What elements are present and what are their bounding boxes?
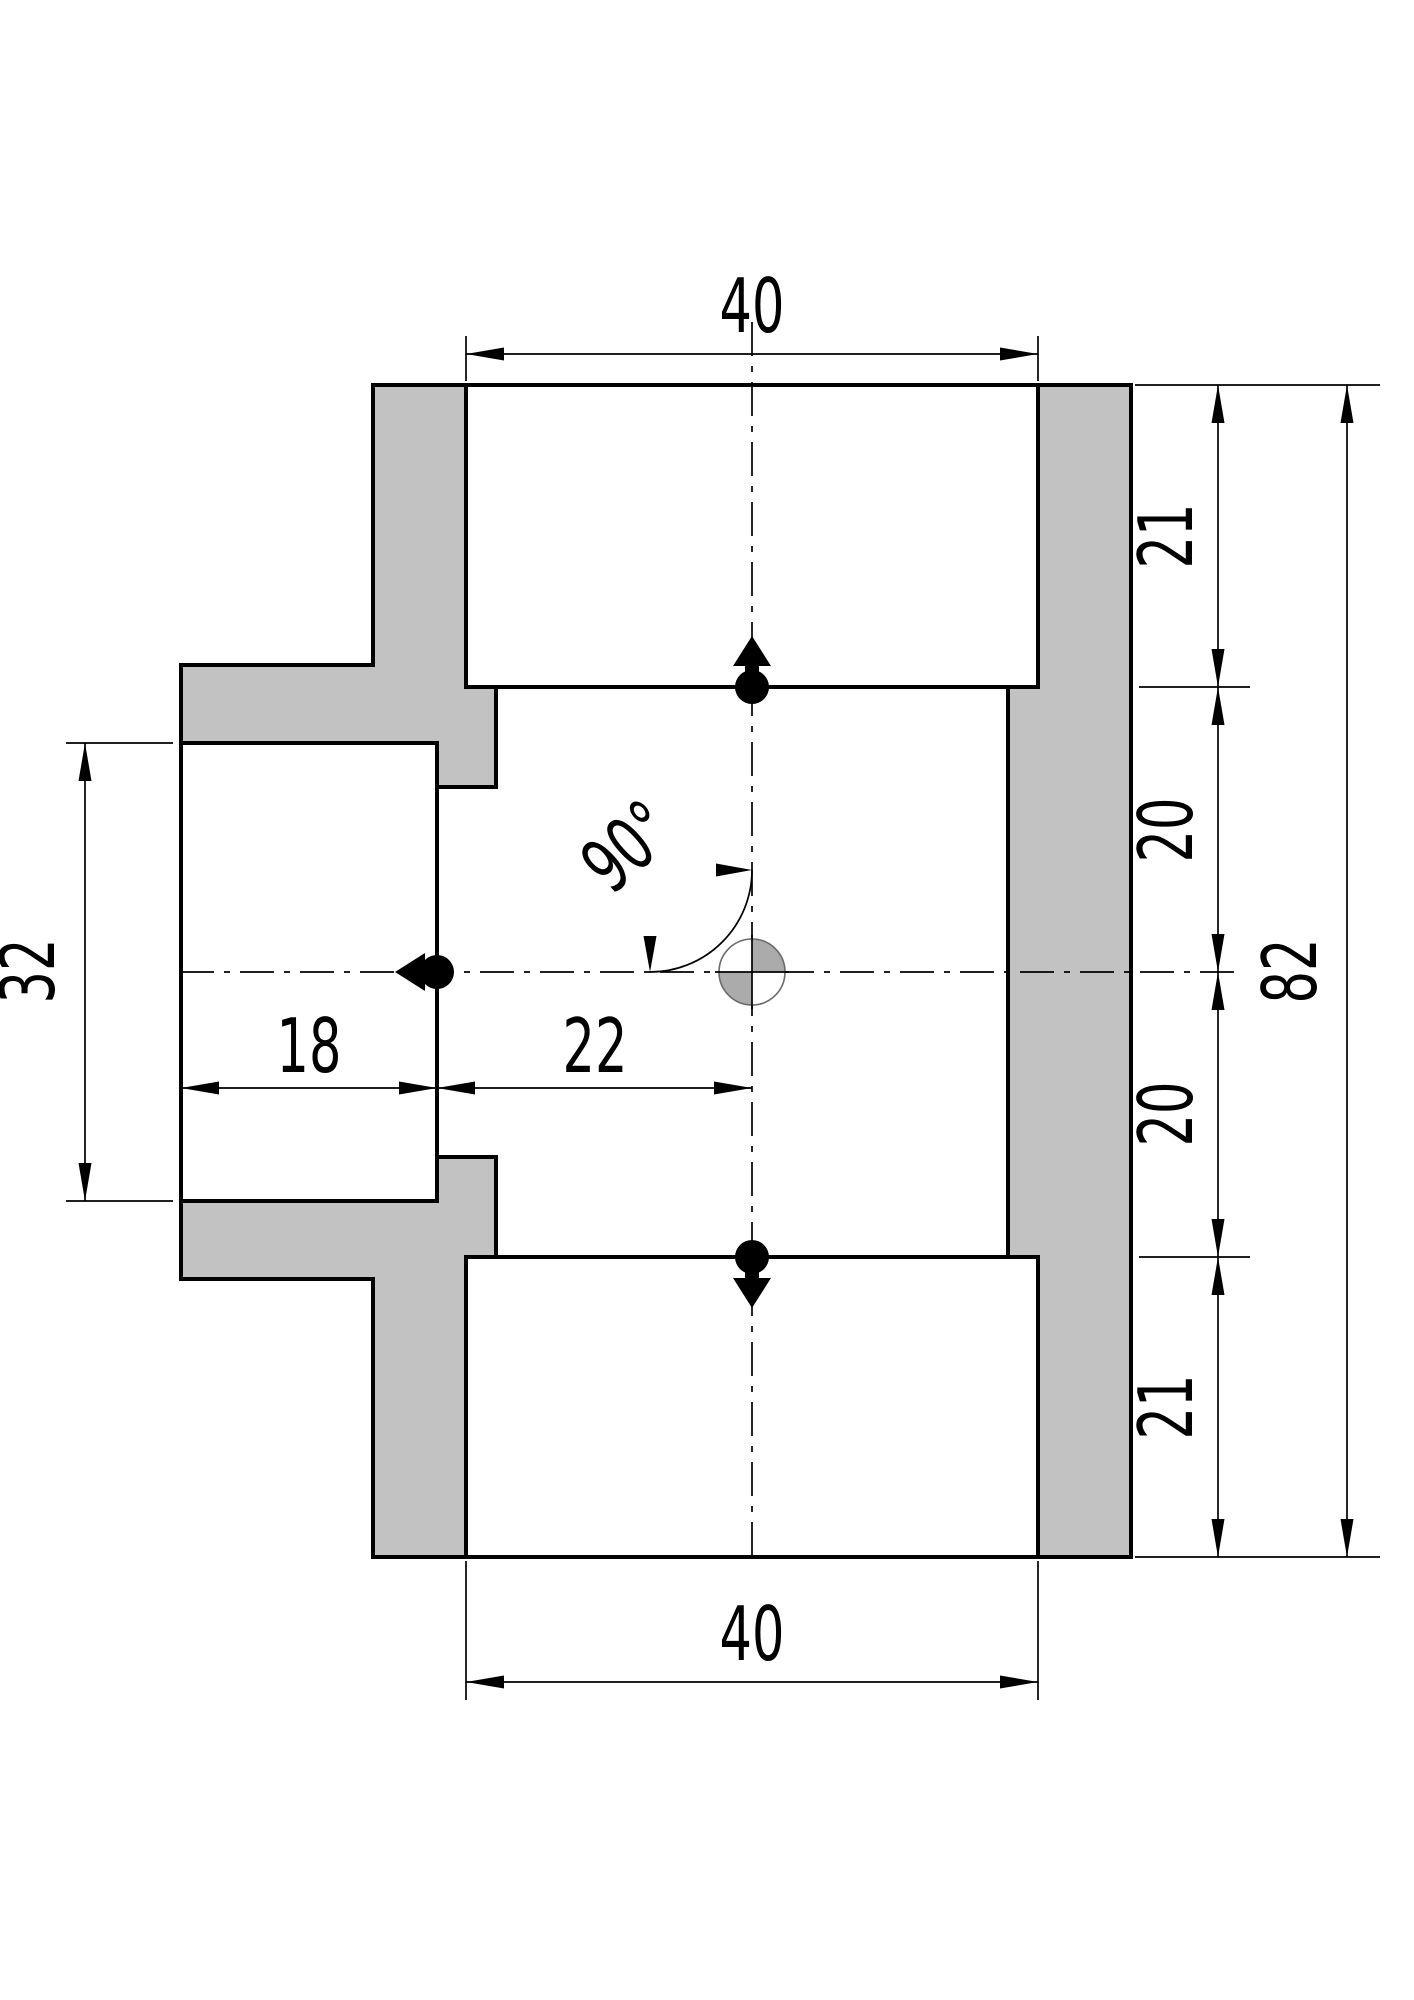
dim-label-socket-depth: 18 — [277, 1003, 342, 1091]
dim-label-seg-lower: 20 — [1123, 1082, 1211, 1147]
dimension-left-bore: 32 — [0, 743, 173, 1201]
dim-arrow-bottom — [79, 1163, 92, 1201]
center-mark-icon — [715, 935, 789, 1009]
dim-arrow — [714, 1082, 752, 1095]
dim-arrow — [1212, 649, 1225, 687]
dim-label-left-bore: 32 — [0, 939, 73, 1004]
dim-arrow — [1212, 934, 1225, 972]
section-region-right — [1008, 385, 1131, 1557]
dim-arrow-top — [1341, 385, 1354, 423]
dim-label-top-width: 40 — [720, 263, 785, 351]
dimension-depth-offset-chain: 18 22 — [181, 1003, 752, 1094]
dimension-bottom-width: 40 — [466, 1561, 1038, 1700]
dim-label-branch-angle: 90° — [565, 784, 691, 910]
drawing-page: 40 40 21 20 20 21 82 — [0, 0, 1414, 2000]
dim-arrow-right — [1000, 1676, 1038, 1689]
dim-label-seg-top: 21 — [1123, 504, 1211, 569]
dim-arrow — [1212, 687, 1225, 725]
dim-arrow-left — [466, 348, 504, 361]
dim-arrow — [1212, 1219, 1225, 1257]
left-arrow-icon — [395, 953, 425, 991]
dim-label-bottom-width: 40 — [720, 1591, 785, 1679]
dim-arrow — [1212, 385, 1225, 423]
dim-arrow-bottom — [1341, 1519, 1354, 1557]
dimension-top-width: 40 — [466, 263, 1038, 381]
dimension-overall-height: 82 — [1247, 385, 1353, 1557]
measure-point-left — [395, 953, 454, 991]
dim-arrow — [1212, 972, 1225, 1010]
dim-arrow-right — [1000, 348, 1038, 361]
dim-label-seg-bottom: 21 — [1123, 1375, 1211, 1440]
dim-arrow-left — [466, 1676, 504, 1689]
dim-label-overall-height: 82 — [1247, 939, 1335, 1004]
measure-point-bottom — [733, 1240, 771, 1308]
technical-drawing-tee-fitting-section: 40 40 21 20 20 21 82 — [0, 0, 1414, 2000]
section-region-bottom-left — [181, 1157, 496, 1557]
dim-arrow — [399, 1082, 437, 1095]
dim-arrow-top — [79, 743, 92, 781]
dim-arrow — [1212, 1257, 1225, 1295]
dimension-branch-angle: 90° — [565, 784, 752, 972]
dim-label-center-offset: 22 — [563, 1003, 628, 1091]
part-outline-edges — [181, 385, 1038, 1557]
dim-arrow — [1212, 1519, 1225, 1557]
section-region-top-left — [181, 385, 496, 787]
measure-point-top — [733, 636, 771, 704]
up-arrow-icon — [733, 636, 771, 666]
dim-arrow — [437, 1082, 475, 1095]
arc-arrow-bottom — [644, 936, 657, 972]
arc-arrow-right — [716, 864, 752, 877]
dim-label-seg-upper: 20 — [1123, 798, 1211, 863]
down-arrow-icon — [733, 1278, 771, 1308]
dim-arrow — [181, 1082, 219, 1095]
